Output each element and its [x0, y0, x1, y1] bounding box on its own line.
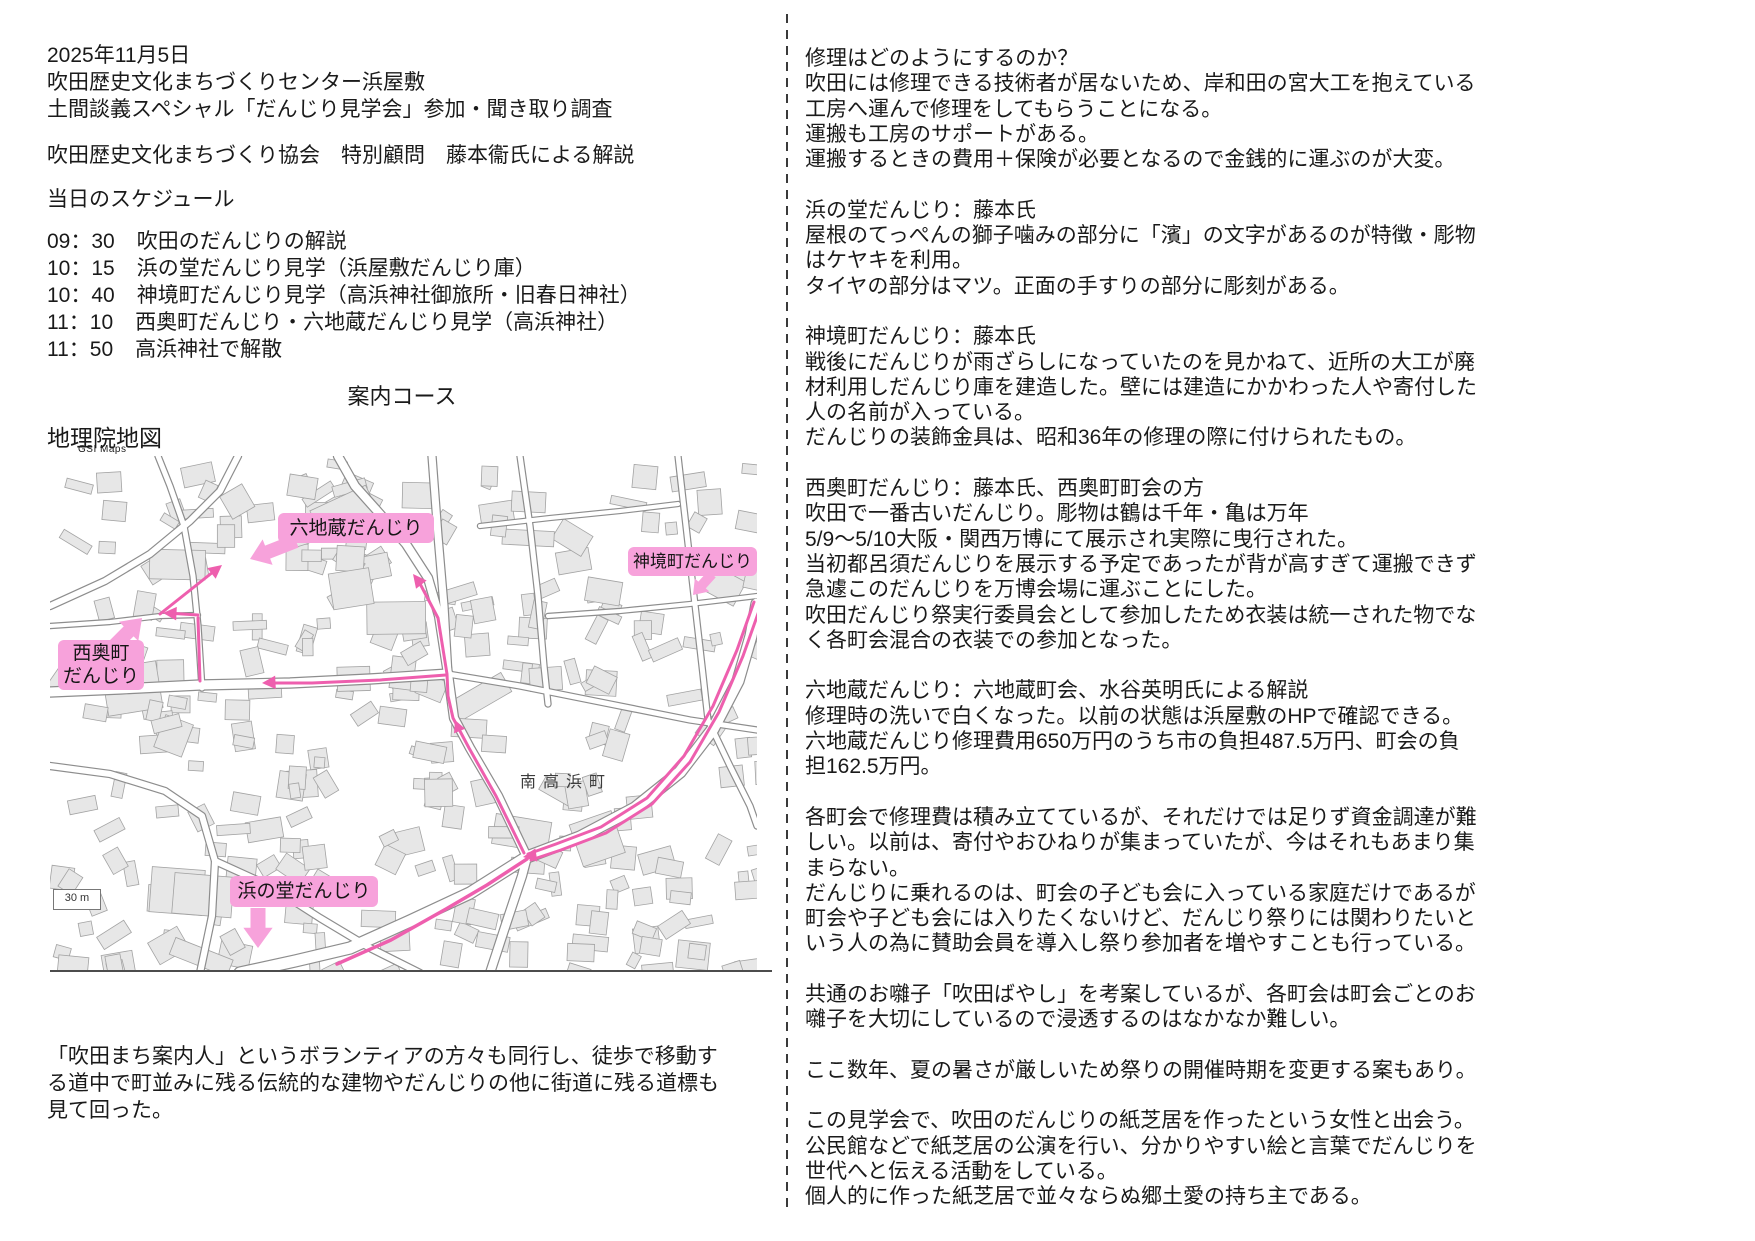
- notes-line: 吹田で一番古いだんじり。彫物は鶴は千年・亀は万年: [805, 501, 1550, 526]
- notes-paragraph: 六地蔵だんじり：六地蔵町会、水谷英明氏による解説修理時の洗いで白くなった。以前の…: [805, 678, 1550, 779]
- map-building: [216, 823, 250, 835]
- schedule-list: 09：30吹田のだんじりの解説10：15浜の堂だんじり見学（浜屋敷だんじり庫）1…: [47, 228, 641, 363]
- notes-line: いう人の為に賛助会員を導入し祭り参加者を増やすことも行っている。: [805, 931, 1550, 956]
- notes-line: 運搬も工房のサポートがある。: [805, 122, 1550, 147]
- schedule-item: 浜の堂だんじり見学（浜屋敷だんじり庫）: [137, 255, 536, 282]
- notes-line: く各町会混合の衣装での参加となった。: [805, 628, 1550, 653]
- map-building: [303, 923, 317, 934]
- schedule-item: 高浜神社で解散: [135, 336, 282, 363]
- footer-line: る道中で町並みに残る伝統的な建物やだんじりの他に街道に残る道標も: [47, 1070, 719, 1097]
- notes-line: 各町会で修理費は積み立てているが、それだけでは足りず資金調達が難: [805, 805, 1550, 830]
- map-label-text: 神境町だんじり: [628, 550, 757, 573]
- map-building: [632, 464, 658, 489]
- map-building: [233, 620, 267, 630]
- map-label-text: 浜の堂だんじり: [230, 880, 378, 903]
- map-building: [507, 636, 528, 646]
- schedule-row: 10：15浜の堂だんじり見学（浜屋敷だんじり庫）: [47, 255, 641, 282]
- map-building: [198, 692, 217, 702]
- schedule-time: 11：10: [47, 309, 113, 336]
- schedule-time: 09：30: [47, 228, 115, 255]
- notes-line: 戦後にだんじりが雨ざらしになっていたのを見かねて、近所の大工が廃: [805, 350, 1550, 375]
- map-building: [510, 942, 528, 968]
- notes-line: 吹田だんじり祭実行委員会として参加したため衣装は統一された物でな: [805, 603, 1550, 628]
- notes-line: 急遽このだんじりを万博会場に運ぶことにした。: [805, 577, 1550, 602]
- map-building: [302, 638, 313, 656]
- notes-line: だんじりに乗れるのは、町会の子ども会に入っている家庭だけであるが: [805, 881, 1550, 906]
- notes-line: ここ数年、夏の暑さが厳しいため祭りの開催時期を変更する案もあり。: [805, 1058, 1550, 1083]
- notes-line: 神境町だんじり：藤本氏: [805, 324, 1550, 349]
- map-building: [217, 525, 234, 548]
- notes-line: だんじりの装飾金具は、昭和36年の修理の際に付けられたもの。: [805, 425, 1550, 450]
- map-building: [280, 838, 300, 853]
- map-source-subtitle: GSI Maps: [78, 444, 126, 455]
- notes-line: 修理時の洗いで白くなった。以前の状態は浜屋敷のHPで確認できる。: [805, 704, 1550, 729]
- notes-line: 個人的に作った紙芝居で並々ならぬ郷土愛の持ち主である。: [805, 1184, 1550, 1209]
- schedule-item: 西奥町だんじり・六地蔵だんじり見学（高浜神社）: [135, 309, 618, 336]
- notes-line: 運搬するときの費用＋保険が必要となるので金銭的に運ぶのが大変。: [805, 147, 1550, 172]
- map-building: [454, 614, 473, 638]
- notes-line: 担162.5万円。: [805, 754, 1550, 779]
- schedule-item: 吹田のだんじりの解説: [137, 228, 347, 255]
- walking-route: [198, 618, 200, 681]
- notes-paragraph: 修理はどのようにするのか？吹田には修理できる技術者が居ないため、岸和田の宮大工を…: [805, 46, 1550, 172]
- map-building: [99, 541, 116, 554]
- notes-paragraph: 各町会で修理費は積み立てているが、それだけでは足りず資金調達が難しい。以前は、寄…: [805, 805, 1550, 957]
- schedule-title: 当日のスケジュール: [47, 186, 235, 213]
- notes-paragraph: 神境町だんじり：藤本氏戦後にだんじりが雨ざらしになっていたのを見かねて、近所の大…: [805, 324, 1550, 450]
- map-building: [287, 474, 318, 500]
- map-building: [378, 706, 407, 727]
- map-building: [481, 466, 498, 486]
- doc-header: 2025年11月5日吹田歴史文化まちづくりセンター浜屋敷土間談義スペシャル「だん…: [47, 42, 613, 123]
- map-label-text: 六地蔵だんじり: [278, 517, 434, 540]
- schedule-row: 10：40神境町だんじり見学（高浜神社御旅所・旧春日神社）: [47, 282, 641, 309]
- map-building: [336, 545, 365, 572]
- notes-line: 吹田には修理できる技術者が居ないため、岸和田の宮大工を抱えている: [805, 71, 1550, 96]
- doc-header-line: 2025年11月5日: [47, 42, 613, 69]
- map-building: [435, 919, 452, 931]
- footer-paragraph: 「吹田まち案内人」というボランティアの方々も同行し、徒歩で移動する道中で町並みに…: [47, 1043, 719, 1124]
- notes-line: タイヤの部分はマツ。正面の手すりの部分に彫刻がある。: [805, 274, 1550, 299]
- route-map: 六地蔵だんじり神境町だんじり西奥町だんじり浜の堂だんじり南高浜町30 m: [50, 456, 757, 970]
- map-building: [670, 891, 692, 905]
- notes-line: 六地蔵だんじり：六地蔵町会、水谷英明氏による解説: [805, 678, 1550, 703]
- map-building: [470, 597, 496, 624]
- schedule-item: 神境町だんじり見学（高浜神社御旅所・旧春日神社）: [137, 282, 641, 309]
- notes-line: 共通のお囃子「吹田ばやし」を考案しているが、各町会は町会ごとのお: [805, 982, 1550, 1007]
- notes-paragraph: 西奥町だんじり：藤本氏、西奥町町会の方吹田で一番古いだんじり。彫物は鶴は千年・亀…: [805, 476, 1550, 653]
- notes-line: 屋根のてっぺんの獅子噛みの部分に「濱」の文字があるのが特徴・彫物: [805, 223, 1550, 248]
- notes-line: 工房へ運んで修理をしてもらうことになる。: [805, 97, 1550, 122]
- doc-header-line: 土間談義スペシャル「だんじり見学会」参加・聞き取り調査: [47, 96, 613, 123]
- schedule-row: 11：50高浜神社で解散: [47, 336, 641, 363]
- map-building: [440, 941, 462, 968]
- map-building: [302, 844, 327, 870]
- schedule-time: 10：15: [47, 255, 115, 282]
- map-building: [102, 500, 127, 521]
- map-building: [567, 943, 595, 961]
- map-border: [50, 970, 772, 972]
- schedule-time: 11：50: [47, 336, 113, 363]
- map-building: [78, 921, 93, 937]
- map-label-nishiokucho: 西奥町だんじり: [58, 640, 144, 690]
- map-building: [149, 549, 205, 580]
- notes-line: 囃子を大切にしているので浸透するのはなかなか難しい。: [805, 1007, 1550, 1032]
- notes-paragraph: 共通のお囃子「吹田ばやし」を考案しているが、各町会は町会ごとのお囃子を大切にして…: [805, 982, 1550, 1033]
- column-divider: [786, 14, 788, 1212]
- map-building: [328, 568, 374, 610]
- map-building: [481, 735, 506, 753]
- footer-line: 「吹田まち案内人」というボランティアの方々も同行し、徒歩で移動す: [47, 1043, 719, 1070]
- notes-line: 浜の堂だんじり：藤本氏: [805, 198, 1550, 223]
- map-label-hamanodo: 浜の堂だんじり: [230, 876, 378, 907]
- map-building: [641, 512, 659, 533]
- notes-line: まらない。: [805, 856, 1550, 881]
- notes-line: 西奥町だんじり：藤本氏、西奥町町会の方: [805, 476, 1550, 501]
- map-building: [710, 632, 723, 646]
- doc-header-line: 吹田歴史文化まちづくりセンター浜屋敷: [47, 69, 613, 96]
- notes-line: 六地蔵だんじり修理費用650万円のうち市の負担487.5万円、町会の負: [805, 729, 1550, 754]
- map-building: [57, 955, 89, 970]
- map-building: [665, 522, 677, 535]
- map-building: [172, 873, 234, 918]
- left-column: 2025年11月5日吹田歴史文化まちづくりセンター浜屋敷土間談義スペシャル「だん…: [47, 0, 767, 1241]
- notes-line: しい。以前は、寄付やおひねりが集まっていたが、今はそれもあまり集: [805, 830, 1550, 855]
- map-building: [606, 890, 618, 910]
- map-building: [302, 550, 322, 562]
- map-building: [96, 472, 121, 493]
- right-column: 修理はどのようにするのか？吹田には修理できる技術者が居ないため、岸和田の宮大工を…: [805, 46, 1550, 1235]
- footer-line: 見て回った。: [47, 1097, 719, 1124]
- notes-line: 人の名前が入っている。: [805, 400, 1550, 425]
- map-building: [688, 943, 707, 960]
- map-building: [424, 779, 452, 807]
- notes-paragraph: ここ数年、夏の暑さが厳しいため祭りの開催時期を変更する案もあり。: [805, 1058, 1550, 1083]
- course-title: 案内コース: [47, 383, 757, 410]
- schedule-row: 09：30吹田のだんじりの解説: [47, 228, 641, 255]
- map-building: [225, 700, 250, 720]
- map-building: [697, 489, 722, 516]
- map-building: [317, 618, 331, 629]
- map-label-text: だんじり: [58, 665, 144, 688]
- map-building: [314, 757, 325, 768]
- map-building: [442, 804, 464, 829]
- map-scale-bar: 30 m: [53, 889, 101, 910]
- district-label: 南高浜町: [520, 768, 612, 792]
- map-building: [454, 864, 477, 884]
- notes-line: 世代へと伝える活動をしている。: [805, 1159, 1550, 1184]
- notes-line: 材利用しだんじり庫を建造した。壁には建造にかかわった人や寄付した: [805, 375, 1550, 400]
- map-building: [747, 735, 757, 755]
- map-building: [156, 805, 179, 818]
- map-label-text: 西奥町: [58, 642, 144, 665]
- map-building: [639, 936, 662, 956]
- map-building: [632, 887, 652, 906]
- map-label-shinkaicho: 神境町だんじり: [628, 547, 757, 576]
- map-building: [589, 911, 609, 935]
- schedule-row: 11：10西奥町だんじり・六地蔵だんじり見学（高浜神社）: [47, 309, 641, 336]
- notes-line: 修理はどのようにするのか？: [805, 46, 1550, 71]
- map-building: [402, 482, 432, 508]
- commentary-line: 吹田歴史文化まちづくり協会 特別顧問 藤本衞氏による解説: [47, 142, 634, 169]
- notes-line: 当初都呂須だんじりを展示する予定であったが背が高すぎて運搬できず: [805, 552, 1550, 577]
- map-building: [188, 761, 203, 772]
- map-building: [276, 734, 295, 754]
- map-building: [157, 660, 184, 682]
- notes-paragraph: この見学会で、吹田のだんじりの紙芝居を作ったという女性と出会う。公民館などで紙芝…: [805, 1108, 1550, 1209]
- notes-line: 5/9～5/10大阪・関西万博にて展示され実際に曳行された。: [805, 527, 1550, 552]
- notes-line: はケヤキを利用。: [805, 248, 1550, 273]
- notes-paragraph: 浜の堂だんじり：藤本氏屋根のてっぺんの獅子噛みの部分に「濱」の文字があるのが特徴…: [805, 198, 1550, 299]
- map-building: [289, 783, 301, 799]
- map-label-rokujizo: 六地蔵だんじり: [278, 513, 434, 543]
- map-building: [735, 880, 757, 900]
- notes-line: この見学会で、吹田のだんじりの紙芝居を作ったという女性と出会う。: [805, 1108, 1550, 1133]
- map-building: [367, 601, 426, 634]
- notes-line: 町会や子ども会には入りたくないけど、だんじり祭りには関わりたいと: [805, 906, 1550, 931]
- notes-line: 公民館などで紙芝居の公演を行い、分かりやすい絵と言葉でだんじりを: [805, 1134, 1550, 1159]
- schedule-time: 10：40: [47, 282, 115, 309]
- field-notes-page: 2025年11月5日吹田歴史文化まちづくりセンター浜屋敷土間談義スペシャル「だん…: [0, 0, 1755, 1241]
